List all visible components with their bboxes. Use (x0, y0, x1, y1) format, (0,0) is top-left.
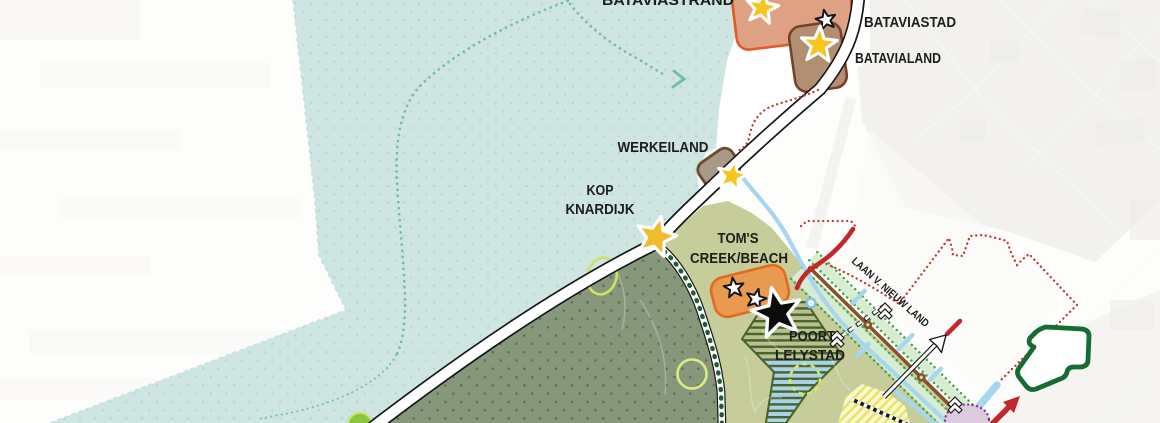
svg-text:BATAVIASTAD: BATAVIASTAD (864, 15, 956, 31)
svg-text:TOM'S: TOM'S (718, 231, 759, 247)
svg-text:WERKEILAND: WERKEILAND (618, 140, 709, 156)
svg-text:CREEK/BEACH: CREEK/BEACH (690, 251, 788, 267)
svg-text:BATAVIALAND: BATAVIALAND (855, 51, 941, 67)
svg-text:POORT: POORT (789, 329, 835, 345)
svg-text:BATAVIASTRAND: BATAVIASTRAND (602, 0, 734, 9)
svg-text:LELYSTAD: LELYSTAD (775, 348, 845, 364)
svg-text:KNARDIJK: KNARDIJK (566, 202, 635, 218)
svg-text:KOP: KOP (587, 183, 614, 199)
